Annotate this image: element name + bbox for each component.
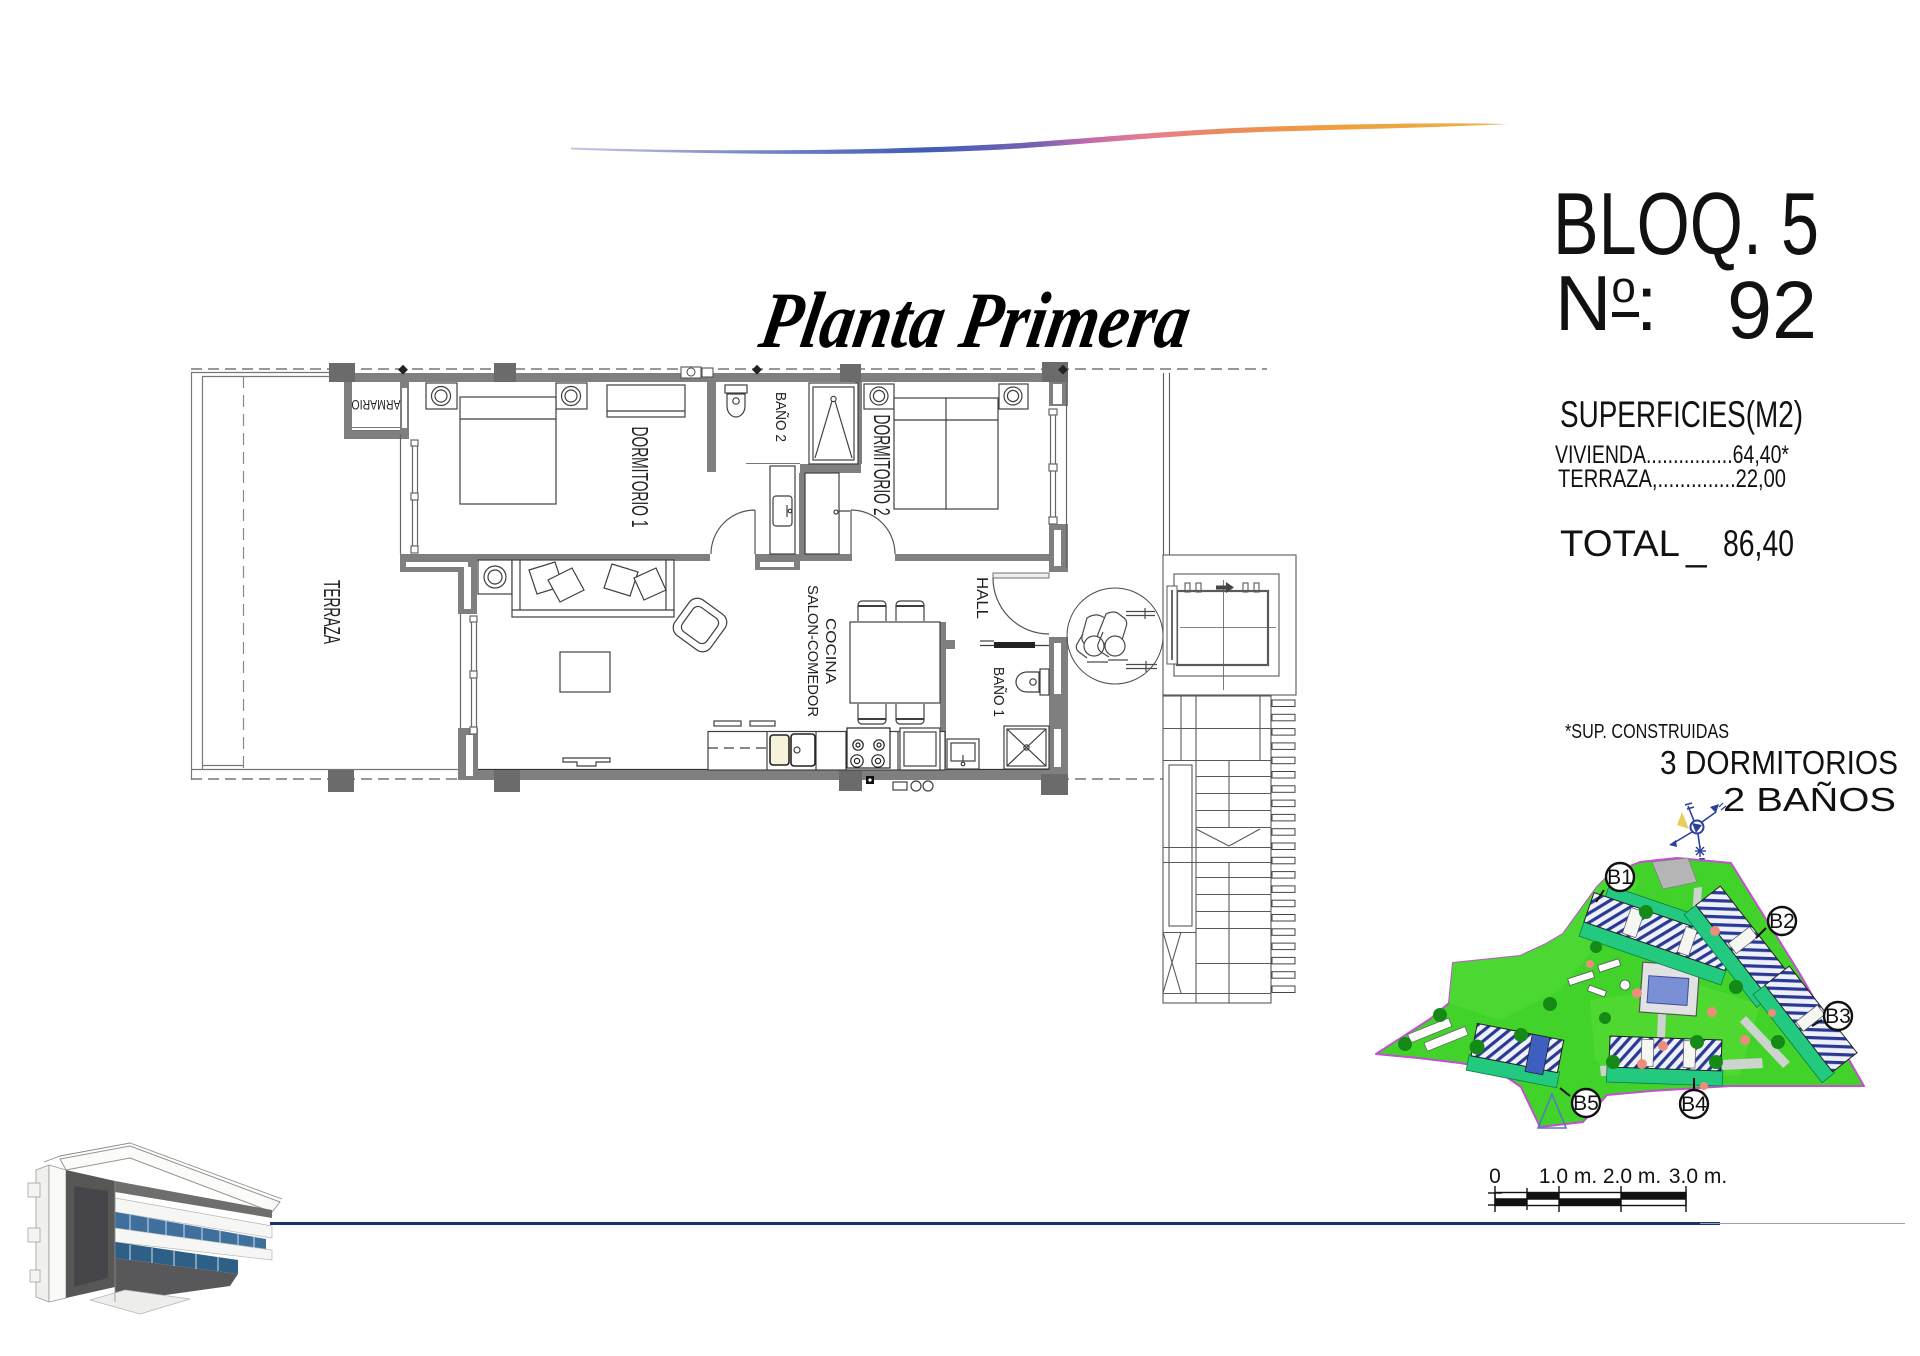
svg-text:TERRAZA,..............22,00: TERRAZA,..............22,00 xyxy=(1558,465,1786,493)
svg-text:BAÑO 2: BAÑO 2 xyxy=(772,392,789,442)
svg-text:86,40: 86,40 xyxy=(1723,523,1794,564)
svg-text:TERRAZA: TERRAZA xyxy=(319,580,345,644)
svg-text:DORMITORIO 1: DORMITORIO 1 xyxy=(627,427,653,528)
svg-text:SALON-COMEDOR: SALON-COMEDOR xyxy=(804,585,821,717)
svg-text:SUPERFICIES(M2): SUPERFICIES(M2) xyxy=(1560,394,1803,435)
svg-text:BAÑO 1: BAÑO 1 xyxy=(990,667,1007,717)
svg-text:2.0 m.: 2.0 m. xyxy=(1603,1165,1661,1188)
svg-text:No:: No: xyxy=(1555,259,1658,347)
svg-text:TOTAL: TOTAL xyxy=(1560,523,1680,564)
svg-text:2 BAÑOS: 2 BAÑOS xyxy=(1723,781,1896,818)
svg-text:ARMARIO: ARMARIO xyxy=(352,397,401,412)
svg-text:B3: B3 xyxy=(1825,1005,1851,1028)
svg-text:3.0 m.: 3.0 m. xyxy=(1669,1165,1727,1188)
svg-text:B2: B2 xyxy=(1769,910,1795,933)
svg-text:Planta Primera: Planta Primera xyxy=(753,277,1197,365)
svg-text:B4: B4 xyxy=(1681,1093,1707,1116)
svg-text:B5: B5 xyxy=(1573,1092,1599,1115)
svg-text:DORMITORIO 2: DORMITORIO 2 xyxy=(869,415,895,516)
svg-text:92: 92 xyxy=(1727,265,1817,356)
svg-text:1.0 m.: 1.0 m. xyxy=(1539,1165,1597,1188)
svg-text:B1: B1 xyxy=(1607,866,1633,889)
svg-text:HALL: HALL xyxy=(973,577,990,619)
svg-text:COCINA: COCINA xyxy=(822,618,839,684)
svg-text:0: 0 xyxy=(1489,1165,1501,1188)
svg-text:*SUP. CONSTRUIDAS: *SUP. CONSTRUIDAS xyxy=(1565,721,1729,743)
svg-text:3 DORMITORIOS: 3 DORMITORIOS xyxy=(1660,744,1898,781)
svg-text:_: _ xyxy=(1685,527,1707,568)
